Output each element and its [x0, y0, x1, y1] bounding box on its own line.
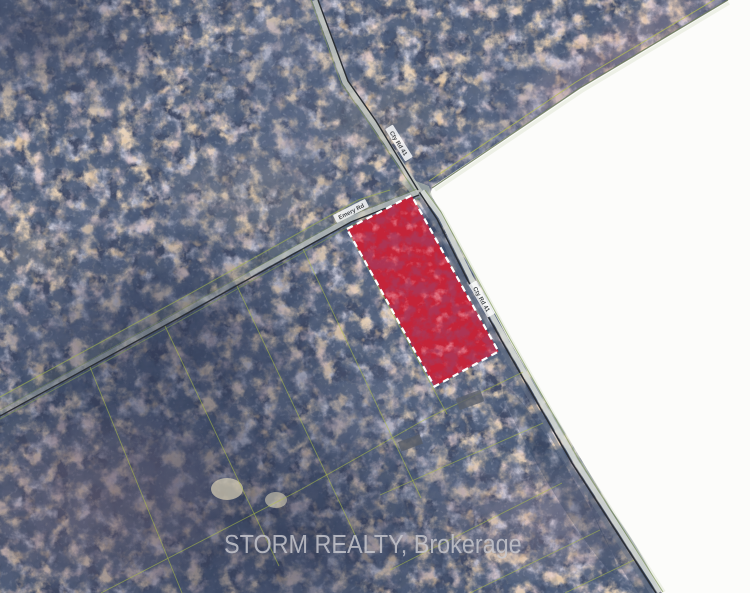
svg-text:STORM REALTY, Brokerage: STORM REALTY, Brokerage — [224, 531, 522, 559]
